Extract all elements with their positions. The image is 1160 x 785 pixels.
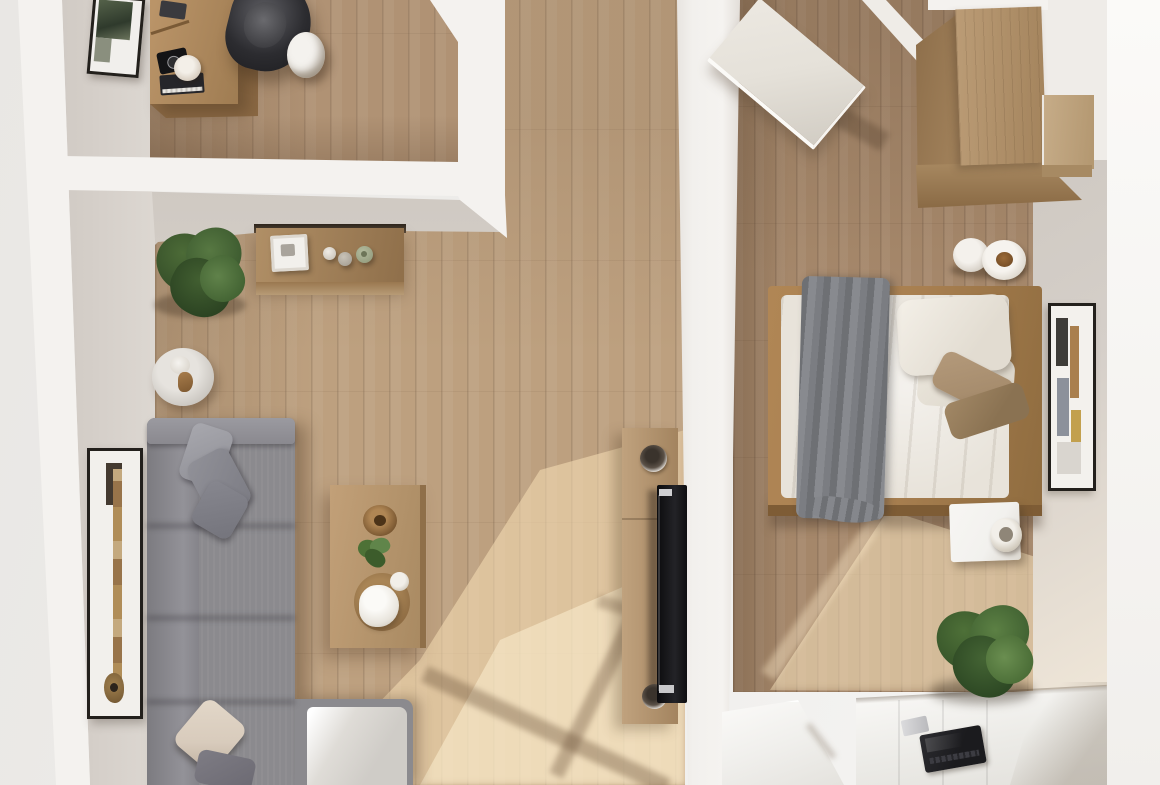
driftwood-art-frame bbox=[87, 448, 143, 719]
bowl-center bbox=[374, 515, 386, 526]
bedroom-art-e bbox=[1057, 442, 1081, 474]
bedroom-art-c bbox=[1057, 378, 1069, 436]
wardrobe-extension-front bbox=[1042, 165, 1092, 177]
tv-edge-highlight bbox=[658, 495, 660, 691]
cup-inner bbox=[999, 527, 1013, 542]
console-bottle-3 bbox=[356, 246, 373, 263]
book-pages-edge bbox=[162, 87, 202, 94]
console-bottle-2 bbox=[338, 252, 352, 266]
outer-wall-right bbox=[1107, 0, 1160, 785]
office-art-frame bbox=[87, 0, 146, 78]
wall-mounted-tv bbox=[657, 485, 687, 703]
wardrobe-top bbox=[955, 7, 1046, 166]
speaker-top bbox=[640, 445, 667, 472]
chaise-cushion bbox=[307, 707, 407, 785]
bedroom-art-a bbox=[1056, 318, 1068, 366]
desk-top-clutter bbox=[159, 0, 187, 19]
floor-plan-render bbox=[0, 0, 1160, 785]
bedroom-art-b bbox=[1070, 326, 1079, 398]
tray-item bbox=[281, 244, 296, 257]
side-table-decor bbox=[178, 372, 193, 392]
laptop-screen-glare bbox=[925, 730, 979, 753]
sofa-seam-3 bbox=[147, 700, 295, 704]
large-plant bbox=[148, 226, 252, 326]
office-art-content-2 bbox=[94, 37, 112, 62]
coffee-table-cup bbox=[390, 572, 409, 591]
bed-blanket bbox=[796, 276, 890, 520]
tv-bracket-bottom bbox=[659, 685, 674, 693]
nightstand-cup bbox=[990, 518, 1022, 552]
coffee-cup-filled bbox=[982, 240, 1026, 280]
laptop-keyboard-line bbox=[929, 750, 979, 765]
round-side-table bbox=[152, 348, 214, 406]
tv-bracket-top bbox=[659, 489, 672, 496]
coffee-table-bowl bbox=[363, 505, 397, 536]
bedroom-art-frame bbox=[1048, 303, 1096, 491]
desk-white-plate bbox=[174, 55, 201, 81]
wardrobe-extension bbox=[1042, 95, 1094, 169]
console-bottle-1 bbox=[323, 247, 336, 260]
console-white-tray bbox=[270, 234, 309, 272]
office-art-content bbox=[96, 0, 133, 40]
driftwood-knob bbox=[110, 683, 118, 692]
bottle-cap bbox=[361, 251, 367, 257]
driftwood-stick bbox=[113, 469, 122, 697]
coffee-table-plant bbox=[354, 536, 396, 574]
office-floor-mug bbox=[287, 32, 325, 78]
console-table-front bbox=[256, 282, 404, 295]
coffee-surface bbox=[996, 252, 1013, 267]
bedroom-plant bbox=[928, 602, 1040, 710]
sofa-seam-2 bbox=[147, 616, 295, 620]
